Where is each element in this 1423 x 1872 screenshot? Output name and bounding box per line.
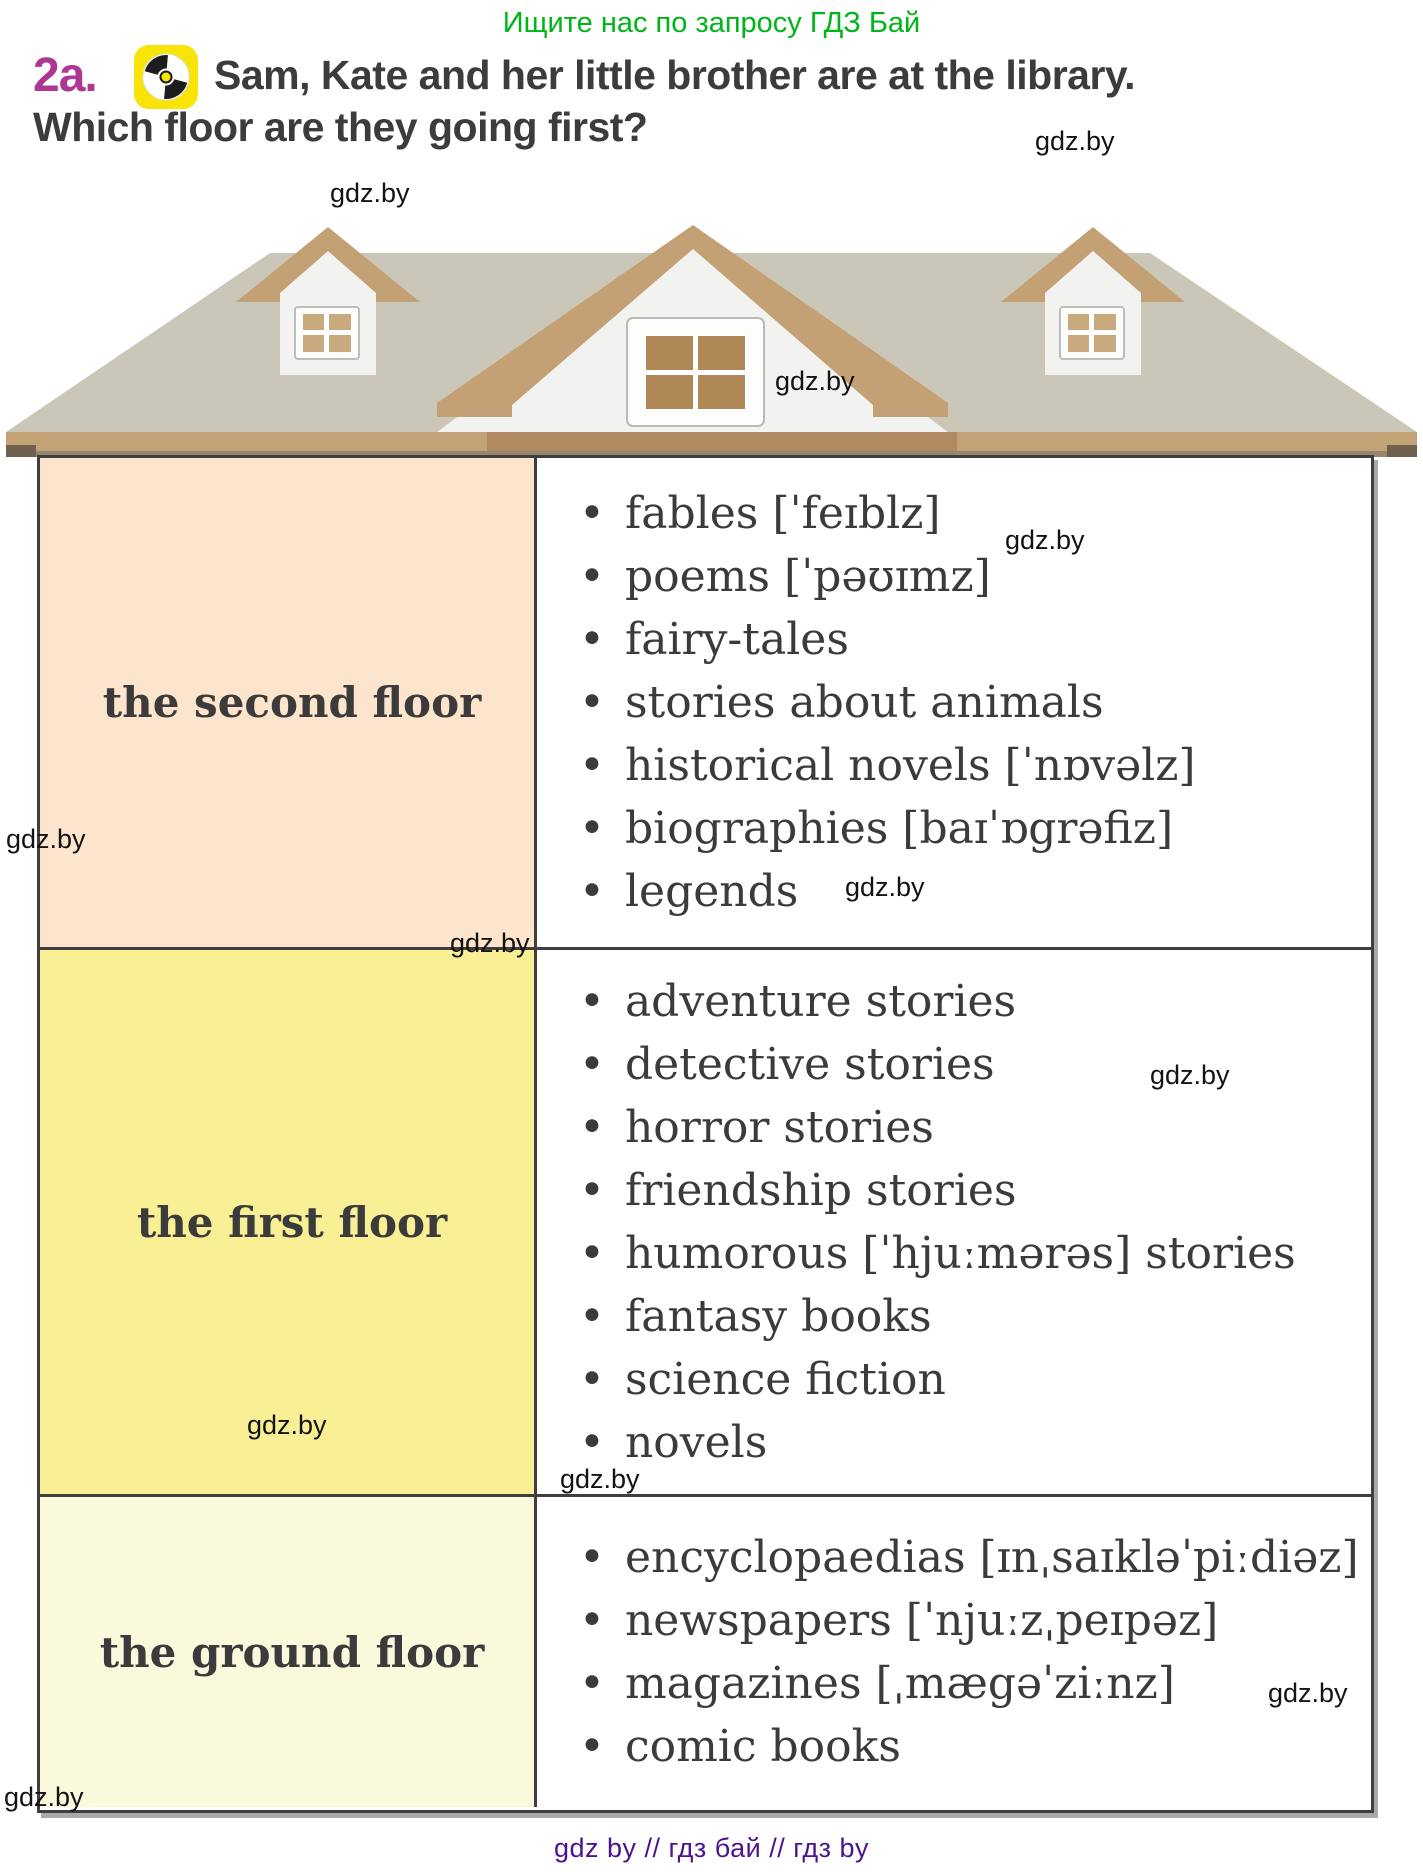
gdz-watermark: gdz.by <box>1035 126 1115 156</box>
gdz-watermark: gdz.by <box>845 872 925 902</box>
footer-gdz-line: gdz by // гдз бай // гдз by <box>0 1833 1423 1864</box>
book-category-item: stories about animals <box>579 671 1371 734</box>
second-floor-label-cell: the second floor <box>40 458 537 947</box>
book-category-item: magazines [ˌmægəˈziːnz] <box>579 1652 1371 1715</box>
book-category-item: encyclopaedias [ɪnˌsaɪkləˈpiːdiəz] <box>579 1526 1371 1589</box>
first-floor-book-list: adventure storiesdetective storieshorror… <box>579 970 1371 1474</box>
ground-floor-label-cell: the ground floor <box>40 1497 537 1807</box>
table-row-second-floor: the second floor fables [ˈfeɪblz]poems [… <box>40 458 1371 947</box>
gdz-watermark: gdz.by <box>1005 525 1085 555</box>
gdz-watermark: gdz.by <box>6 824 86 854</box>
promo-top-text: Ищите нас по запросу ГДЗ Бай <box>0 6 1423 40</box>
gdz-watermark: gdz.by <box>247 1410 327 1440</box>
library-floors-table: the second floor fables [ˈfeɪblz]poems [… <box>37 455 1374 1813</box>
cd-audio-icon <box>133 44 199 110</box>
book-category-item: legends <box>579 860 1371 923</box>
ground-floor-label: the ground floor <box>100 1628 485 1677</box>
book-category-item: biographies [baɪˈɒgrəfiz] <box>579 797 1371 860</box>
book-category-item: science fiction <box>579 1348 1371 1411</box>
gdz-watermark: gdz.by <box>4 1782 84 1812</box>
book-category-item: humorous [ˈhjuːmərəs] stories <box>579 1222 1371 1285</box>
first-floor-items-cell: adventure storiesdetective storieshorror… <box>537 950 1371 1494</box>
second-floor-book-list: fables [ˈfeɪblz]poems [ˈpəʊɪmz]fairy-tal… <box>579 482 1371 923</box>
gdz-watermark: gdz.by <box>450 928 530 958</box>
book-category-item: newspapers [ˈnjuːzˌpeɪpəz] <box>579 1589 1371 1652</box>
gdz-watermark: gdz.by <box>560 1464 640 1494</box>
table-row-first-floor: the first floor adventure storiesdetecti… <box>40 947 1371 1494</box>
book-category-item: horror stories <box>579 1096 1371 1159</box>
book-category-item: fantasy books <box>579 1285 1371 1348</box>
second-floor-items-cell: fables [ˈfeɪblz]poems [ˈpəʊɪmz]fairy-tal… <box>537 458 1371 947</box>
first-floor-label: the first floor <box>137 1198 447 1247</box>
gdz-watermark: gdz.by <box>775 366 855 396</box>
library-roof-illustration <box>0 203 1423 457</box>
book-category-item: detective stories <box>579 1033 1371 1096</box>
gdz-watermark: gdz.by <box>1150 1060 1230 1090</box>
second-floor-label: the second floor <box>103 678 481 727</box>
book-category-item: friendship stories <box>579 1159 1371 1222</box>
exercise-number: 2a. <box>33 48 97 103</box>
gdz-watermark: gdz.by <box>1268 1678 1348 1708</box>
book-category-item: fairy-tales <box>579 608 1371 671</box>
book-category-item: fables [ˈfeɪblz] <box>579 482 1371 545</box>
ground-floor-book-list: encyclopaedias [ɪnˌsaɪkləˈpiːdiəz]newspa… <box>579 1526 1371 1778</box>
book-category-item: comic books <box>579 1715 1371 1778</box>
ground-floor-items-cell: encyclopaedias [ɪnˌsaɪkləˈpiːdiəz]newspa… <box>537 1497 1371 1807</box>
exercise-title-line2: Which floor are they going first? <box>33 104 647 151</box>
book-category-item: adventure stories <box>579 970 1371 1033</box>
book-category-item: historical novels [ˈnɒvəlz] <box>579 734 1371 797</box>
exercise-title-line1: Sam, Kate and her little brother are at … <box>214 52 1135 99</box>
book-category-item: novels <box>579 1411 1371 1474</box>
gdz-watermark: gdz.by <box>330 178 410 208</box>
table-row-ground-floor: the ground floor encyclopaedias [ɪnˌsaɪk… <box>40 1494 1371 1807</box>
book-category-item: poems [ˈpəʊɪmz] <box>579 545 1371 608</box>
